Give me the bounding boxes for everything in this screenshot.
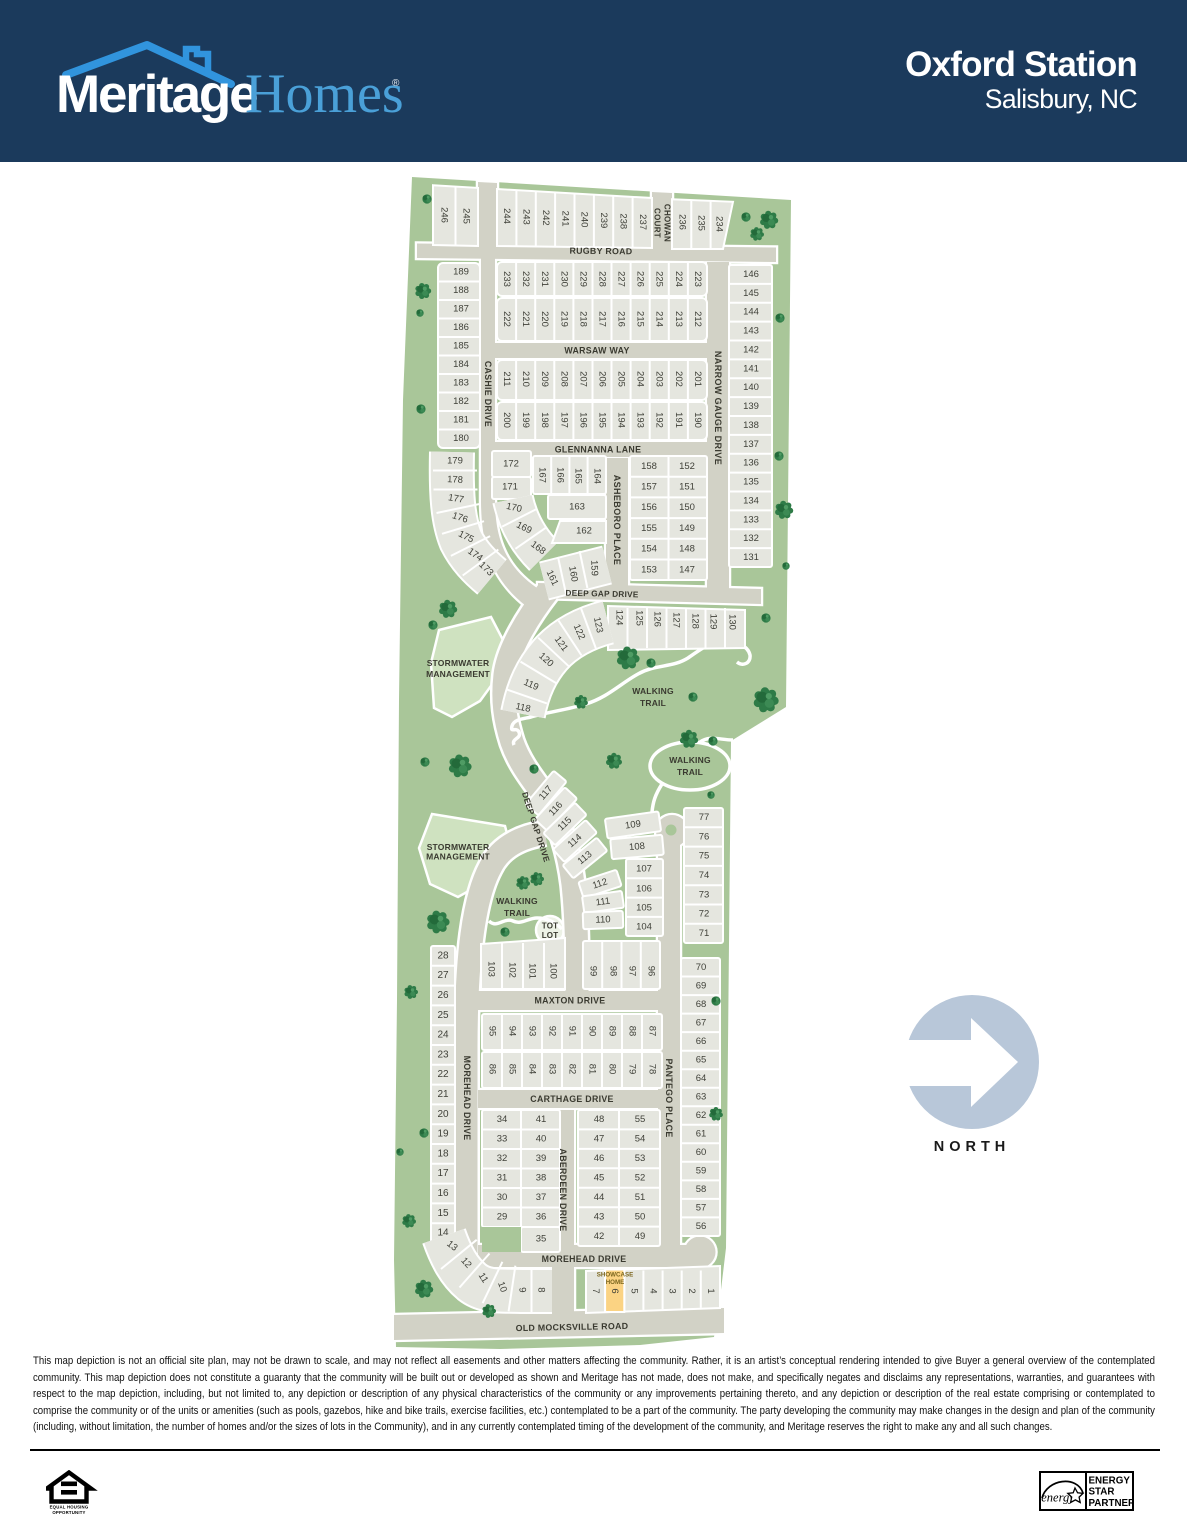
svg-text:98: 98 [608, 966, 619, 977]
svg-text:159: 159 [588, 560, 600, 576]
svg-text:9: 9 [516, 1287, 527, 1293]
svg-text:6: 6 [609, 1288, 620, 1293]
svg-text:152: 152 [679, 461, 695, 472]
svg-text:240: 240 [579, 212, 590, 228]
svg-text:25: 25 [437, 1010, 449, 1021]
svg-text:75: 75 [699, 851, 710, 862]
svg-text:26: 26 [437, 990, 449, 1001]
svg-text:138: 138 [743, 420, 759, 431]
svg-text:96: 96 [646, 966, 657, 977]
svg-text:204: 204 [635, 371, 646, 387]
svg-text:71: 71 [699, 928, 710, 939]
svg-text:4: 4 [648, 1288, 659, 1293]
svg-text:15: 15 [437, 1208, 449, 1219]
svg-text:OPPORTUNITY: OPPORTUNITY [52, 1510, 85, 1515]
svg-text:1: 1 [705, 1288, 716, 1293]
svg-text:156: 156 [641, 502, 657, 513]
svg-text:165: 165 [573, 468, 584, 484]
svg-text:193: 193 [635, 412, 646, 428]
svg-text:89: 89 [607, 1026, 618, 1037]
svg-text:191: 191 [673, 412, 684, 428]
svg-text:155: 155 [641, 523, 657, 534]
svg-text:186: 186 [453, 322, 469, 333]
svg-text:69: 69 [696, 980, 707, 991]
svg-text:68: 68 [696, 999, 707, 1010]
svg-text:135: 135 [743, 477, 759, 488]
svg-text:27: 27 [437, 970, 449, 981]
svg-text:228: 228 [597, 271, 608, 287]
svg-text:WARSAW WAY: WARSAW WAY [564, 346, 629, 356]
svg-text:230: 230 [558, 271, 569, 287]
svg-text:84: 84 [527, 1064, 538, 1075]
svg-text:7: 7 [590, 1288, 601, 1293]
svg-text:45: 45 [594, 1173, 605, 1184]
svg-text:50: 50 [635, 1211, 646, 1222]
svg-text:56: 56 [696, 1221, 707, 1232]
svg-text:178: 178 [447, 474, 463, 486]
svg-text:CHOWAN: CHOWAN [663, 204, 672, 242]
svg-text:179: 179 [447, 456, 463, 467]
svg-text:38: 38 [536, 1173, 547, 1184]
svg-text:PANTEGO PLACE: PANTEGO PLACE [664, 1058, 674, 1137]
svg-text:76: 76 [699, 831, 710, 842]
svg-text:74: 74 [699, 870, 710, 881]
svg-text:NARROW GAUGE DRIVE: NARROW GAUGE DRIVE [713, 351, 723, 465]
svg-text:83: 83 [547, 1064, 558, 1075]
svg-text:222: 222 [501, 311, 512, 327]
svg-text:92: 92 [547, 1026, 558, 1037]
svg-text:51: 51 [635, 1192, 646, 1203]
svg-text:237: 237 [637, 214, 648, 230]
svg-text:227: 227 [616, 271, 627, 287]
svg-text:149: 149 [679, 523, 695, 534]
svg-text:33: 33 [497, 1134, 508, 1145]
svg-text:201: 201 [692, 371, 703, 387]
svg-text:STORMWATER: STORMWATER [427, 842, 490, 852]
svg-text:82: 82 [567, 1064, 578, 1075]
svg-text:124: 124 [614, 610, 625, 626]
svg-text:221: 221 [520, 311, 531, 327]
svg-text:TRAIL: TRAIL [677, 767, 703, 777]
svg-text:WALKING: WALKING [632, 686, 674, 696]
svg-text:189: 189 [453, 267, 469, 278]
svg-text:157: 157 [641, 482, 657, 493]
svg-text:150: 150 [679, 502, 695, 513]
svg-text:MAXTON DRIVE: MAXTON DRIVE [535, 996, 606, 1006]
svg-text:ASHEBORO PLACE: ASHEBORO PLACE [612, 475, 622, 566]
svg-text:183: 183 [453, 378, 469, 389]
svg-text:ENERGY: ENERGY [1089, 1476, 1131, 1487]
svg-text:243: 243 [521, 209, 532, 225]
svg-text:28: 28 [437, 950, 449, 961]
svg-text:102: 102 [507, 962, 518, 978]
svg-text:137: 137 [743, 439, 759, 450]
svg-text:72: 72 [699, 909, 710, 920]
svg-text:213: 213 [673, 311, 684, 327]
svg-text:90: 90 [587, 1026, 598, 1037]
svg-text:196: 196 [577, 412, 588, 428]
svg-text:8: 8 [535, 1287, 546, 1293]
svg-text:223: 223 [692, 271, 703, 287]
svg-text:231: 231 [539, 271, 550, 287]
svg-text:TOT: TOT [542, 922, 558, 931]
svg-text:MANAGEMENT: MANAGEMENT [426, 669, 490, 679]
svg-text:151: 151 [679, 482, 695, 493]
svg-text:EQUAL HOUSING: EQUAL HOUSING [50, 1505, 89, 1510]
svg-text:164: 164 [592, 468, 603, 484]
svg-text:64: 64 [696, 1073, 707, 1084]
svg-text:225: 225 [654, 271, 665, 287]
svg-text:136: 136 [743, 458, 759, 469]
svg-text:246: 246 [439, 207, 450, 223]
svg-text:63: 63 [696, 1092, 707, 1103]
svg-text:95: 95 [487, 1026, 498, 1037]
svg-text:139: 139 [743, 401, 759, 412]
svg-text:215: 215 [635, 311, 646, 327]
svg-text:141: 141 [743, 363, 759, 374]
svg-text:18: 18 [437, 1148, 449, 1159]
svg-text:128: 128 [690, 613, 701, 629]
svg-text:87: 87 [647, 1026, 658, 1037]
svg-text:199: 199 [520, 412, 531, 428]
svg-text:144: 144 [743, 307, 759, 318]
svg-text:129: 129 [708, 614, 719, 630]
svg-text:171: 171 [502, 482, 518, 493]
svg-text:197: 197 [558, 412, 569, 428]
svg-text:233: 233 [501, 271, 512, 287]
svg-text:238: 238 [618, 213, 629, 229]
svg-text:34: 34 [497, 1114, 508, 1125]
svg-text:5: 5 [628, 1288, 639, 1293]
svg-text:30: 30 [497, 1192, 508, 1203]
svg-text:166: 166 [555, 467, 566, 483]
svg-text:103: 103 [486, 961, 497, 977]
svg-text:CARTHAGE DRIVE: CARTHAGE DRIVE [530, 1094, 613, 1104]
svg-text:162: 162 [576, 526, 592, 537]
svg-text:STORMWATER: STORMWATER [427, 658, 490, 668]
svg-text:66: 66 [696, 1036, 707, 1047]
svg-text:3: 3 [667, 1288, 678, 1293]
svg-text:212: 212 [692, 311, 703, 327]
svg-text:226: 226 [635, 271, 646, 287]
svg-text:29: 29 [497, 1212, 508, 1223]
svg-text:200: 200 [501, 412, 512, 428]
svg-text:SHOWCASE: SHOWCASE [597, 1272, 633, 1279]
svg-text:206: 206 [597, 371, 608, 387]
svg-text:132: 132 [743, 533, 759, 544]
svg-text:57: 57 [696, 1203, 707, 1214]
svg-text:TRAIL: TRAIL [640, 698, 666, 708]
svg-text:209: 209 [539, 371, 550, 387]
svg-text:203: 203 [654, 371, 665, 387]
svg-text:73: 73 [699, 889, 710, 900]
svg-text:134: 134 [743, 495, 759, 506]
svg-text:158: 158 [641, 461, 657, 472]
svg-text:20: 20 [437, 1109, 449, 1120]
svg-text:PARTNER: PARTNER [1089, 1498, 1135, 1509]
svg-text:22: 22 [437, 1069, 449, 1080]
svg-text:220: 220 [539, 311, 550, 327]
svg-text:32: 32 [497, 1153, 508, 1164]
svg-text:91: 91 [567, 1026, 578, 1037]
svg-text:53: 53 [635, 1153, 646, 1164]
svg-text:STAR: STAR [1089, 1487, 1115, 1498]
svg-text:21: 21 [437, 1089, 449, 1100]
svg-text:244: 244 [501, 208, 512, 224]
svg-text:106: 106 [636, 884, 652, 895]
svg-text:2: 2 [686, 1288, 697, 1293]
svg-text:RUGBY ROAD: RUGBY ROAD [569, 246, 632, 257]
svg-text:104: 104 [636, 922, 652, 933]
svg-text:187: 187 [453, 304, 469, 315]
svg-text:130: 130 [727, 614, 738, 630]
svg-text:180: 180 [453, 433, 469, 444]
svg-text:54: 54 [635, 1134, 646, 1145]
svg-text:44: 44 [594, 1192, 605, 1203]
svg-text:35: 35 [536, 1234, 547, 1245]
svg-text:100: 100 [548, 963, 559, 979]
svg-text:36: 36 [536, 1212, 547, 1223]
svg-text:125: 125 [634, 610, 645, 626]
svg-text:40: 40 [536, 1134, 547, 1145]
svg-text:207: 207 [577, 371, 588, 387]
svg-text:190: 190 [692, 412, 703, 428]
svg-text:55: 55 [635, 1114, 646, 1125]
svg-text:41: 41 [536, 1114, 547, 1125]
svg-text:97: 97 [627, 966, 638, 977]
svg-text:239: 239 [598, 212, 609, 228]
svg-text:188: 188 [453, 285, 469, 296]
svg-text:194: 194 [616, 412, 627, 428]
svg-text:79: 79 [627, 1064, 638, 1075]
svg-text:MOREHEAD DRIVE: MOREHEAD DRIVE [462, 1056, 472, 1141]
svg-text:219: 219 [558, 311, 569, 327]
svg-text:145: 145 [743, 288, 759, 299]
svg-text:105: 105 [636, 903, 652, 914]
svg-text:153: 153 [641, 564, 657, 575]
svg-text:195: 195 [597, 412, 608, 428]
svg-text:147: 147 [679, 564, 695, 575]
svg-text:131: 131 [743, 552, 759, 563]
svg-text:210: 210 [520, 371, 531, 387]
svg-text:224: 224 [673, 271, 684, 287]
svg-text:80: 80 [607, 1064, 618, 1075]
svg-text:94: 94 [507, 1026, 518, 1037]
svg-text:39: 39 [536, 1153, 547, 1164]
svg-text:86: 86 [487, 1064, 498, 1075]
svg-text:HOME: HOME [606, 1279, 625, 1286]
svg-text:110: 110 [595, 914, 611, 926]
svg-text:46: 46 [594, 1153, 605, 1164]
svg-text:58: 58 [696, 1184, 707, 1195]
svg-text:42: 42 [594, 1231, 605, 1242]
svg-text:61: 61 [696, 1129, 707, 1140]
svg-text:GLENNANNA LANE: GLENNANNA LANE [555, 445, 641, 455]
svg-text:88: 88 [627, 1026, 638, 1037]
svg-text:78: 78 [647, 1064, 658, 1075]
svg-text:142: 142 [743, 344, 759, 355]
svg-text:DEEP GAP DRIVE: DEEP GAP DRIVE [565, 588, 639, 600]
svg-text:172: 172 [503, 459, 519, 470]
svg-text:146: 146 [743, 269, 759, 280]
svg-text:133: 133 [743, 514, 759, 525]
svg-text:85: 85 [507, 1064, 518, 1075]
svg-text:127: 127 [671, 612, 682, 628]
svg-text:65: 65 [696, 1055, 707, 1066]
svg-text:229: 229 [577, 271, 588, 287]
svg-text:235: 235 [696, 215, 707, 231]
svg-text:52: 52 [635, 1173, 646, 1184]
svg-text:205: 205 [616, 371, 627, 387]
svg-text:211: 211 [501, 371, 512, 386]
svg-text:WALKING: WALKING [496, 896, 538, 906]
svg-text:202: 202 [673, 371, 684, 387]
svg-text:MOREHEAD DRIVE: MOREHEAD DRIVE [542, 1254, 627, 1264]
svg-text:185: 185 [453, 341, 469, 352]
svg-text:ABERDEEN DRIVE: ABERDEEN DRIVE [558, 1149, 568, 1232]
svg-text:MANAGEMENT: MANAGEMENT [426, 852, 490, 862]
svg-text:236: 236 [677, 214, 688, 230]
svg-text:59: 59 [696, 1166, 707, 1177]
svg-text:43: 43 [594, 1211, 605, 1222]
svg-text:216: 216 [616, 311, 627, 327]
svg-text:23: 23 [437, 1049, 449, 1060]
svg-text:214: 214 [654, 311, 665, 327]
svg-text:163: 163 [569, 502, 585, 513]
svg-text:LOT: LOT [542, 931, 559, 940]
svg-text:154: 154 [641, 544, 657, 555]
svg-text:217: 217 [597, 311, 608, 327]
svg-text:31: 31 [497, 1173, 508, 1184]
svg-text:234: 234 [714, 216, 725, 232]
svg-text:60: 60 [696, 1147, 707, 1158]
svg-text:70: 70 [696, 962, 707, 973]
svg-text:241: 241 [559, 211, 570, 227]
svg-text:17: 17 [437, 1168, 449, 1179]
svg-text:108: 108 [629, 841, 646, 853]
svg-text:62: 62 [696, 1110, 707, 1121]
svg-text:198: 198 [539, 412, 550, 428]
svg-text:143: 143 [743, 326, 759, 337]
svg-text:77: 77 [699, 812, 710, 823]
svg-text:67: 67 [696, 1017, 707, 1028]
svg-text:81: 81 [587, 1064, 598, 1075]
svg-text:49: 49 [635, 1231, 646, 1242]
svg-text:184: 184 [453, 359, 469, 370]
svg-text:111: 111 [595, 896, 611, 909]
svg-text:101: 101 [527, 963, 538, 979]
svg-text:232: 232 [520, 271, 531, 287]
svg-text:48: 48 [594, 1114, 605, 1125]
svg-text:19: 19 [437, 1129, 449, 1140]
svg-text:TRAIL: TRAIL [504, 908, 530, 918]
svg-text:182: 182 [453, 396, 469, 407]
svg-text:218: 218 [577, 311, 588, 327]
svg-text:245: 245 [461, 208, 472, 224]
svg-text:148: 148 [679, 544, 695, 555]
svg-text:140: 140 [743, 382, 759, 393]
svg-text:99: 99 [588, 966, 599, 977]
svg-text:181: 181 [453, 415, 469, 426]
svg-text:192: 192 [654, 412, 665, 428]
svg-text:COURT: COURT [653, 208, 662, 238]
svg-text:107: 107 [636, 864, 652, 875]
svg-text:93: 93 [527, 1026, 538, 1037]
svg-text:NORTH: NORTH [934, 1139, 1011, 1155]
svg-text:WALKING: WALKING [669, 755, 711, 765]
svg-text:37: 37 [536, 1192, 547, 1203]
svg-text:167: 167 [537, 467, 548, 483]
svg-text:24: 24 [437, 1030, 449, 1041]
svg-text:242: 242 [540, 210, 551, 226]
svg-text:47: 47 [594, 1134, 605, 1145]
svg-text:126: 126 [652, 611, 663, 627]
svg-text:109: 109 [624, 818, 641, 831]
svg-text:208: 208 [558, 371, 569, 387]
svg-text:CASHIE DRIVE: CASHIE DRIVE [483, 361, 493, 427]
svg-text:16: 16 [437, 1188, 449, 1199]
